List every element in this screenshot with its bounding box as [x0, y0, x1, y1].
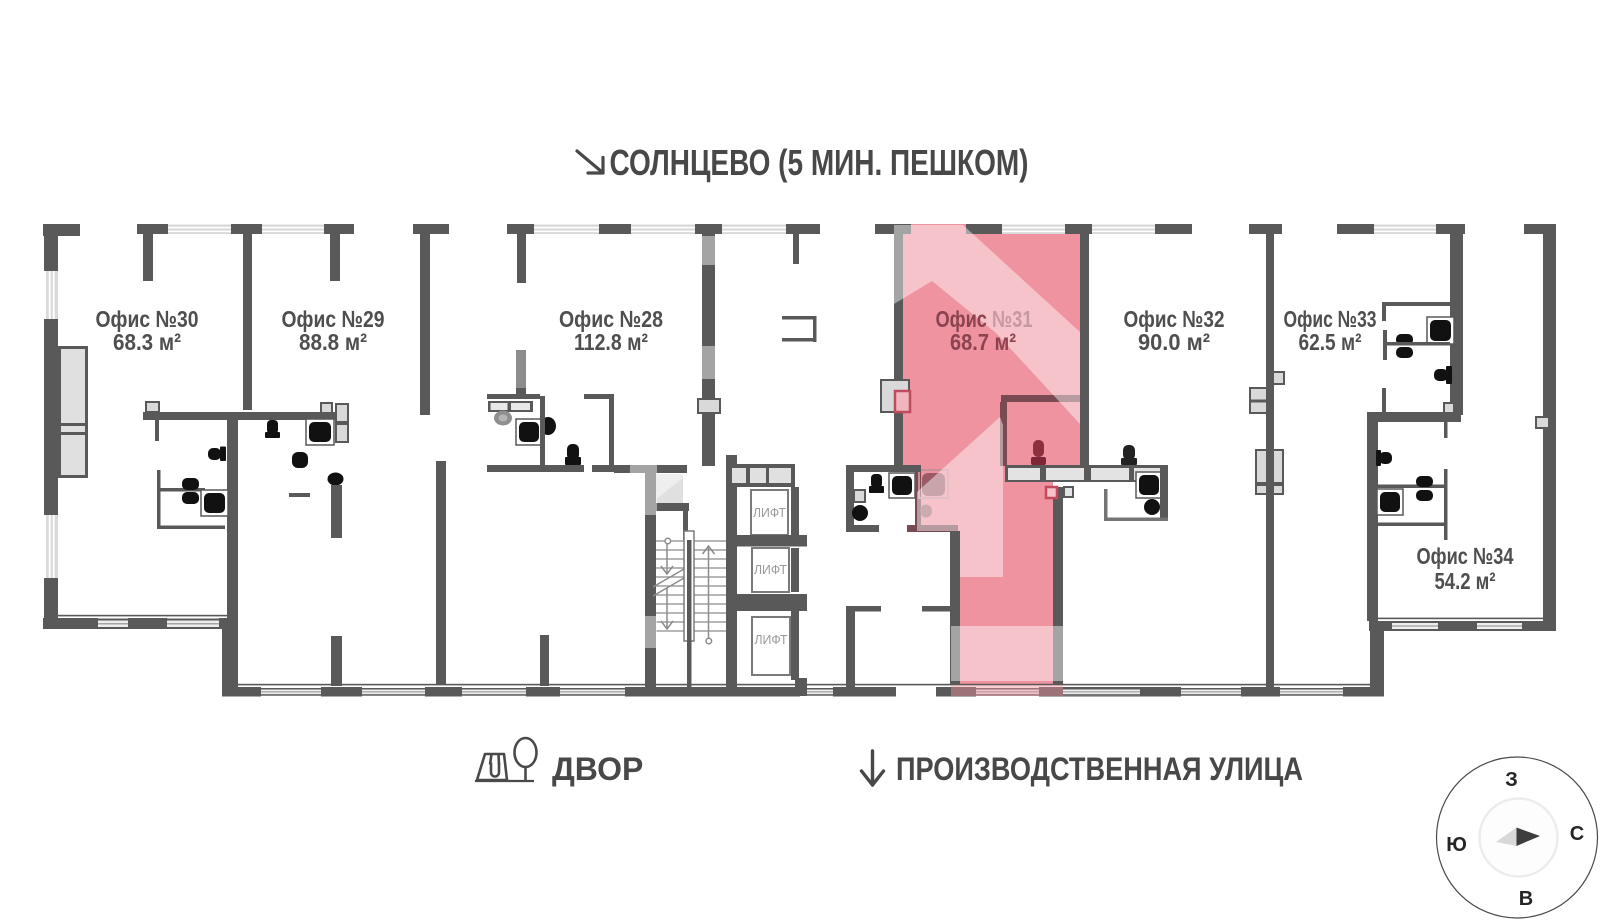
- svg-text:Ю: Ю: [1446, 834, 1467, 856]
- svg-text:88.8 м²: 88.8 м²: [299, 329, 367, 355]
- svg-text:С: С: [1570, 823, 1584, 845]
- svg-text:68.3 м²: 68.3 м²: [113, 329, 181, 355]
- svg-text:62.5 м²: 62.5 м²: [1299, 329, 1362, 355]
- svg-text:ПРОИЗВОДСТВЕННАЯ УЛИЦА: ПРОИЗВОДСТВЕННАЯ УЛИЦА: [896, 751, 1303, 787]
- svg-text:112.8 м²: 112.8 м²: [574, 329, 648, 355]
- svg-text:ЛИФТ: ЛИФТ: [755, 632, 788, 647]
- svg-text:ЛИФТ: ЛИФТ: [754, 562, 787, 577]
- svg-text:З: З: [1505, 769, 1518, 791]
- svg-text:ДВОР: ДВОР: [552, 751, 643, 787]
- svg-text:СОЛНЦЕВО (5 МИН. ПЕШКОМ): СОЛНЦЕВО (5 МИН. ПЕШКОМ): [610, 142, 1029, 183]
- svg-text:68.7 м²: 68.7 м²: [950, 329, 1016, 355]
- svg-text:54.2 м²: 54.2 м²: [1435, 568, 1496, 594]
- svg-text:ЛИФТ: ЛИФТ: [753, 505, 786, 520]
- svg-text:Офис №34: Офис №34: [1417, 543, 1514, 569]
- svg-text:90.0 м²: 90.0 м²: [1138, 329, 1210, 355]
- svg-text:В: В: [1519, 888, 1533, 910]
